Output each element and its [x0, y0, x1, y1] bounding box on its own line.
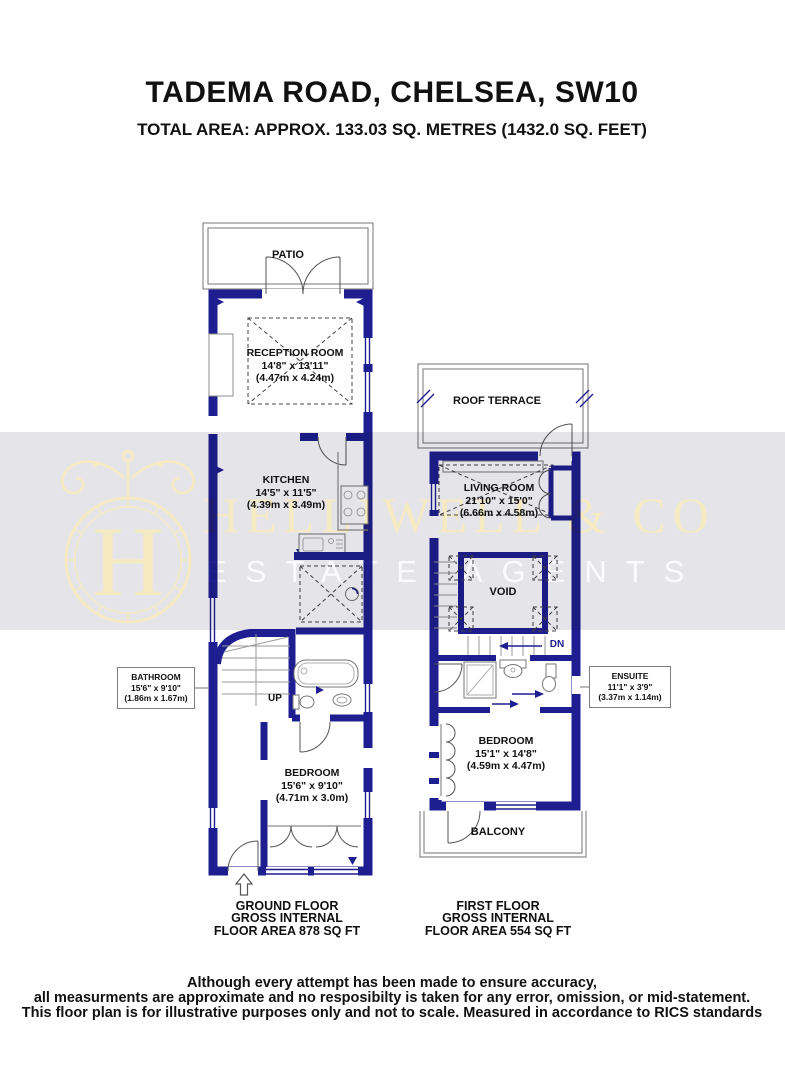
- room-label-living: LIVING ROOM 21'10" x 15'0" (6.66m x 4.58…: [460, 482, 538, 520]
- shower-icon: [464, 662, 496, 698]
- terrace-step: [443, 461, 543, 472]
- bathroom-callout: BATHROOM 15'6" x 9'10" (1.86m x 1.67m): [117, 667, 195, 709]
- living-closet: [539, 468, 576, 518]
- staircase-up: [217, 629, 292, 718]
- room-name: LIVING ROOM: [460, 482, 538, 495]
- kitchen-sink-icon: [299, 534, 345, 555]
- callout-name: BATHROOM: [118, 672, 194, 683]
- ensuite-toilet-icon: [543, 664, 557, 692]
- basin-icon: [333, 694, 351, 706]
- bay-window-scallops: [429, 724, 455, 808]
- stairs-dn-label: DN: [550, 639, 564, 650]
- floorplan-canvas: [0, 0, 785, 1080]
- entrance-arrow-icon: [236, 874, 252, 895]
- hall-skylight: [300, 566, 362, 622]
- room-dims-imperial: 14'5" x 11'5": [247, 487, 325, 500]
- room-dims-metric: (4.47m x 4.24m): [247, 372, 344, 385]
- room-dims-metric: (4.39m x 3.49m): [247, 499, 325, 512]
- room-name: KITCHEN: [247, 474, 325, 487]
- callout-metric: (3.37m x 1.14m): [590, 692, 670, 703]
- bathtub-icon: [294, 660, 358, 687]
- bedroom-french-doors: [267, 826, 361, 847]
- callout-metric: (1.86m x 1.67m): [118, 693, 194, 704]
- ensuite-callout: ENSUITE 11'1" x 3'9" (3.37m x 1.14m): [589, 666, 671, 708]
- void-label: VOID: [490, 586, 517, 598]
- patio-label: PATIO: [272, 249, 304, 261]
- room-dims-metric: (4.71m x 3.0m): [276, 792, 348, 805]
- bedroom-door: [292, 718, 372, 752]
- room-dims-imperial: 14'8" x 13'11": [247, 360, 344, 373]
- caption-line: GROSS INTERNAL: [214, 912, 360, 924]
- callout-imperial: 11'1" x 3'9": [590, 682, 670, 693]
- room-dims-imperial: 15'1" x 14'8": [467, 748, 545, 761]
- room-label-ground-bedroom: BEDROOM 15'6" x 9'10" (4.71m x 3.0m): [276, 767, 348, 805]
- stairs-up-label: UP: [268, 693, 282, 704]
- caption-line: FLOOR AREA 878 SQ FT: [214, 925, 360, 937]
- floorplan-page: TADEMA ROAD, CHELSEA, SW10 TOTAL AREA: A…: [0, 0, 785, 1080]
- room-dims-imperial: 15'6" x 9'10": [276, 780, 348, 793]
- callout-name: ENSUITE: [590, 671, 670, 682]
- ground-floor-caption: GROUND FLOOR GROSS INTERNAL FLOOR AREA 8…: [214, 900, 360, 937]
- callout-imperial: 15'6" x 9'10": [118, 683, 194, 694]
- kitchen-wall-door: [300, 437, 372, 465]
- ensuite-area: [434, 660, 581, 708]
- room-name: BEDROOM: [276, 767, 348, 780]
- room-dims-imperial: 21'10" x 15'0": [460, 495, 538, 508]
- ground-bottom-openings: [228, 841, 358, 876]
- caption-line: FLOOR AREA 554 SQ FT: [425, 925, 571, 937]
- room-label-kitchen: KITCHEN 14'5" x 11'5" (4.39m x 3.49m): [247, 474, 325, 512]
- caption-line: GROSS INTERNAL: [425, 912, 571, 924]
- roof-terrace-label: ROOF TERRACE: [453, 395, 541, 407]
- bathroom-area: [293, 631, 372, 709]
- room-name: BEDROOM: [467, 735, 545, 748]
- first-floor-plan: [417, 364, 593, 857]
- patio-french-doors: [262, 257, 344, 299]
- balcony-label: BALCONY: [471, 826, 525, 838]
- toilet-icon: [293, 695, 314, 709]
- room-name: RECEPTION ROOM: [247, 347, 344, 360]
- first-floor-caption: FIRST FLOOR GROSS INTERNAL FLOOR AREA 55…: [425, 900, 571, 937]
- hob-icon: [341, 486, 368, 524]
- room-label-first-bedroom: BEDROOM 15'1" x 14'8" (4.59m x 4.47m): [467, 735, 545, 773]
- room-dims-metric: (4.59m x 4.47m): [467, 760, 545, 773]
- room-dims-metric: (6.66m x 4.58m): [460, 507, 538, 520]
- room-label-reception: RECEPTION ROOM 14'8" x 13'11" (4.47m x 4…: [247, 347, 344, 385]
- hall-wall: [260, 722, 268, 871]
- ensuite-basin-icon: [500, 660, 526, 678]
